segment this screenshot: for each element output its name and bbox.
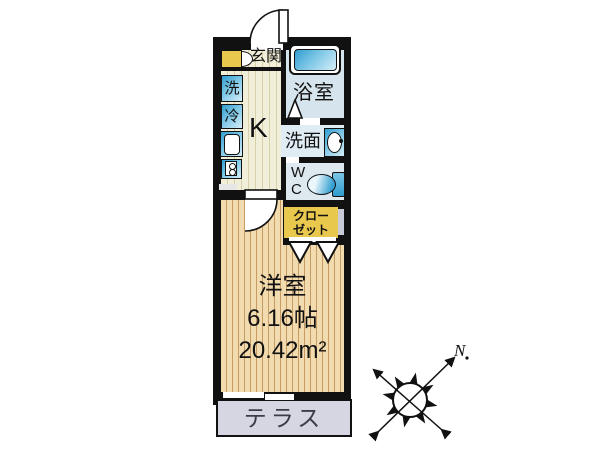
genkan-label: 玄関: [250, 49, 282, 65]
folding-door-icon: [286, 241, 342, 265]
bathroom-door-opening: [300, 118, 320, 125]
kitchen-label: K: [249, 114, 268, 142]
wall-recess: [338, 209, 344, 235]
washer-label: 洗: [224, 81, 239, 96]
bath-label: 浴室: [293, 83, 335, 103]
kitchen-sink-counter: [220, 131, 243, 157]
compass-north-label: N: [453, 341, 467, 360]
washing-machine: 洗: [221, 75, 243, 102]
terrace: テラス: [216, 399, 352, 437]
main-room-label: 洋室 6.16帖 20.42m²: [221, 271, 344, 367]
toilet: [307, 170, 345, 197]
shoe-cabinet: [221, 50, 242, 68]
sink-basin: [224, 134, 240, 155]
window-sash-left: [223, 392, 264, 398]
refrigerator: 冷: [221, 104, 243, 129]
room-door-icon: [244, 189, 280, 234]
compass-icon: N: [366, 338, 474, 446]
vanity-sink: [324, 128, 345, 157]
main-room-name: 洋室: [221, 271, 344, 303]
main-room-size-jo: 6.16帖: [221, 303, 344, 335]
window-sash-right: [265, 394, 294, 400]
entrance-door-icon: [246, 5, 296, 50]
floor-plan: テラス 洗 冷: [0, 0, 600, 450]
stove-plate: [225, 161, 237, 176]
closet-label: クロー ゼット: [284, 209, 338, 237]
terrace-label: テラス: [244, 407, 325, 430]
washroom-label: 洗面: [285, 132, 321, 150]
bathtub: [289, 44, 341, 75]
counter-end: [219, 184, 237, 190]
stove: [221, 159, 242, 179]
wc-label: W C: [291, 164, 305, 198]
main-room-size-m2: 20.42m²: [221, 335, 344, 367]
fridge-label: 冷: [224, 109, 239, 124]
